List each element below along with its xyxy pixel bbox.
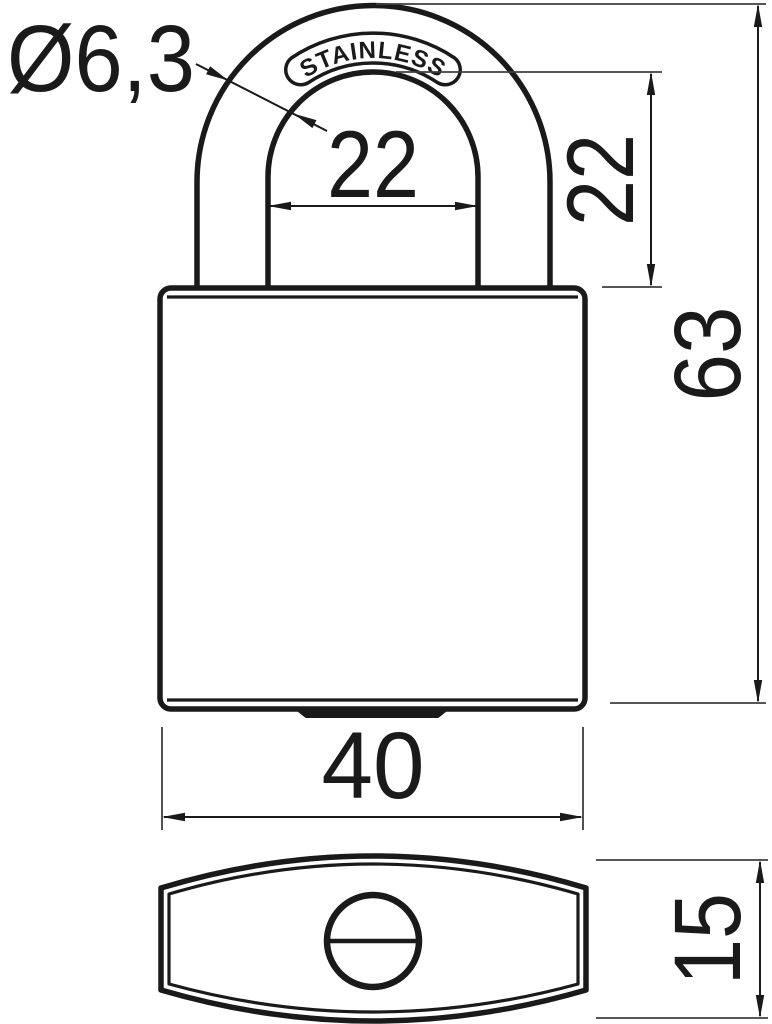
arrow-overall-height-top <box>754 4 762 27</box>
dim-body-width-label: 40 <box>322 713 425 819</box>
padlock-technical-drawing: STAINLESS <box>0 0 772 1024</box>
arrow-inner-width-right <box>455 202 478 210</box>
arrow-inner-width-left <box>268 202 291 210</box>
dim-shackle-inner-width-label: 22 <box>327 112 419 218</box>
arrow-depth-top <box>756 860 764 883</box>
arrow-body-width-left <box>162 813 185 821</box>
dim-body-depth-label: 15 <box>655 893 761 985</box>
arrow-body-width-right <box>560 813 583 821</box>
arrow-shackle-diameter-outer <box>206 66 229 80</box>
padlock-bottom-view <box>161 856 586 1021</box>
arrow-depth-bottom <box>756 995 764 1018</box>
body-outline <box>160 288 585 709</box>
arrow-overall-height-bottom <box>754 680 762 703</box>
dim-overall-height-label: 63 <box>655 307 761 402</box>
arrow-shackle-diameter-inner <box>294 114 317 128</box>
dim-shackle-clearance-label: 22 <box>548 134 654 226</box>
dim-shackle-diameter-label: Ø6,3 <box>7 6 195 112</box>
arrow-clearance-top <box>647 72 655 95</box>
arrow-clearance-bottom <box>647 264 655 287</box>
